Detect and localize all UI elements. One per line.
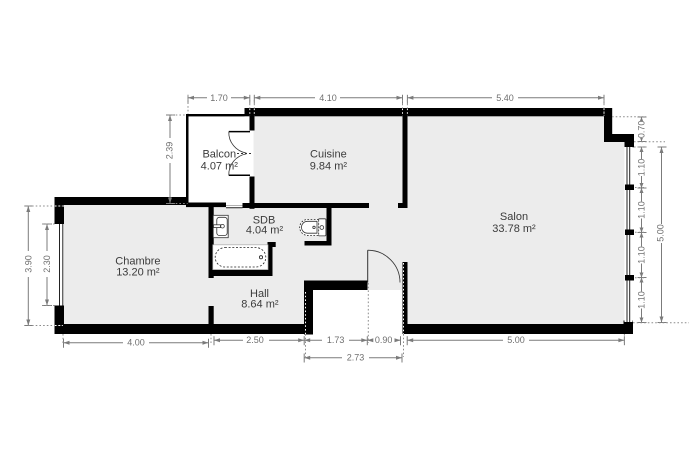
svg-text:0.70: 0.70	[637, 121, 647, 139]
svg-text:0.90: 0.90	[375, 335, 393, 345]
svg-text:2.50: 2.50	[246, 335, 264, 345]
svg-text:33.78 m²: 33.78 m²	[492, 223, 536, 235]
svg-text:3.90: 3.90	[24, 255, 34, 273]
svg-text:8.64 m²: 8.64 m²	[241, 299, 279, 311]
svg-text:2.30: 2.30	[42, 255, 52, 273]
svg-text:2.39: 2.39	[165, 142, 175, 160]
svg-text:1.10: 1.10	[637, 291, 647, 309]
svg-text:1.70: 1.70	[210, 93, 228, 103]
svg-text:1.73: 1.73	[327, 335, 345, 345]
svg-text:5.00: 5.00	[507, 335, 525, 345]
svg-text:13.20 m²: 13.20 m²	[116, 267, 160, 279]
svg-text:1.10: 1.10	[637, 246, 647, 264]
svg-text:5.00: 5.00	[656, 224, 666, 242]
svg-text:4.10: 4.10	[319, 93, 337, 103]
svg-text:4.04 m²: 4.04 m²	[246, 225, 284, 237]
svg-text:2.73: 2.73	[347, 353, 365, 363]
svg-text:Salon: Salon	[500, 211, 528, 223]
svg-text:1.10: 1.10	[637, 201, 647, 219]
svg-text:9.84 m²: 9.84 m²	[310, 161, 348, 173]
svg-text:1.10: 1.10	[637, 159, 647, 177]
svg-text:Balcon: Balcon	[202, 149, 236, 161]
svg-text:5.40: 5.40	[496, 93, 514, 103]
svg-text:4.00: 4.00	[127, 338, 145, 348]
svg-text:4.07 m²: 4.07 m²	[201, 161, 239, 173]
svg-text:Cuisine: Cuisine	[310, 149, 347, 161]
